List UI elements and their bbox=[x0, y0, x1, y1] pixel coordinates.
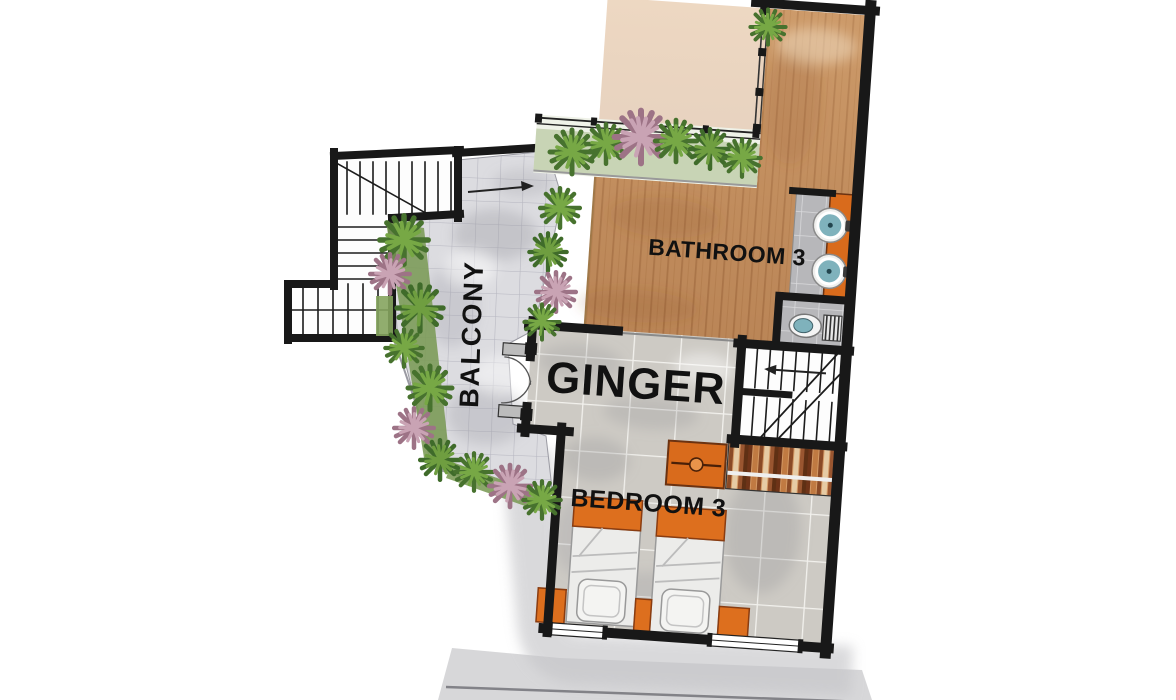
wardrobe-rail bbox=[726, 443, 835, 496]
grass-patch bbox=[376, 296, 393, 336]
floorplan-canvas: BATHROOM 3 GINGER BEDROOM 3 bbox=[0, 0, 1176, 700]
stair-mid-wall bbox=[739, 391, 793, 395]
stair-upper-run bbox=[334, 160, 458, 216]
label-balcony: BALCONY bbox=[454, 260, 489, 408]
internal-staircase bbox=[735, 343, 841, 446]
dresser-handle bbox=[689, 458, 703, 472]
bed bbox=[650, 506, 727, 636]
floorplan-drawing: BATHROOM 3 GINGER BEDROOM 3 bbox=[0, 0, 1176, 700]
